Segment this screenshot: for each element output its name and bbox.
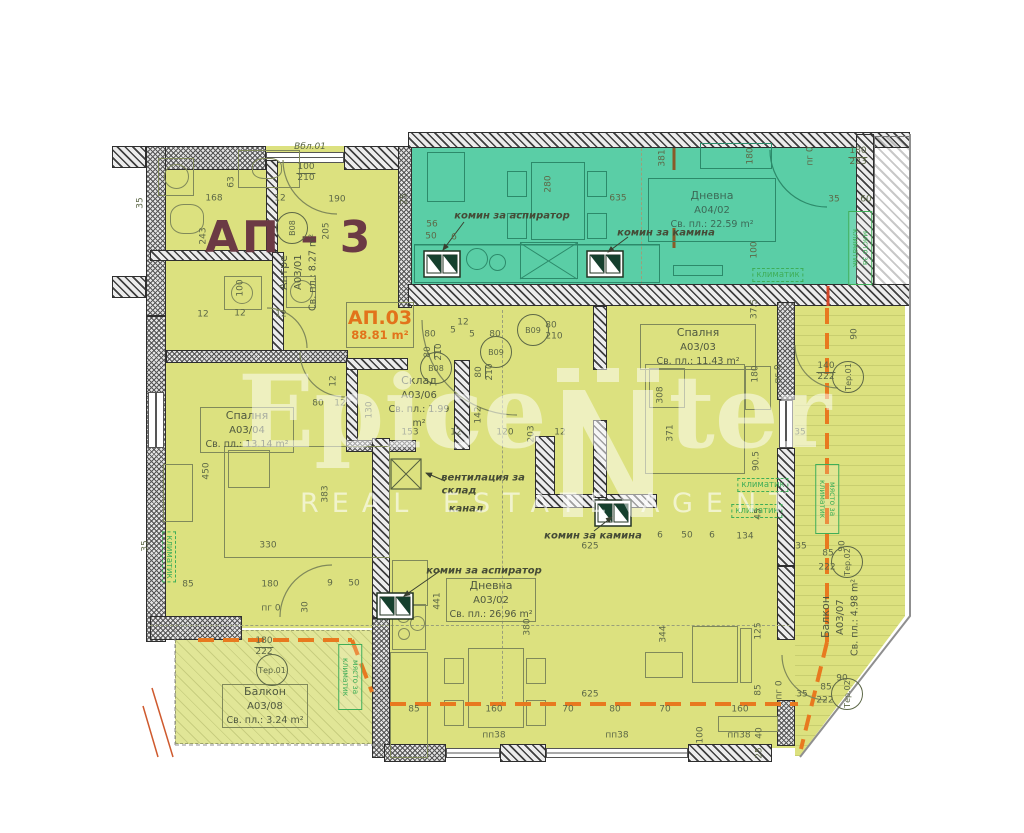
dim-label: 625: [581, 691, 598, 700]
dim-label: 80210: [475, 363, 495, 380]
dim-label: 635: [609, 195, 626, 204]
dim-label: 37.5: [751, 299, 760, 319]
dim-label: 5: [450, 327, 456, 336]
dim-label: 12: [275, 311, 286, 320]
dim-label: 80: [312, 400, 323, 409]
dim-label: 12: [334, 400, 345, 409]
dim-label: 80: [424, 331, 435, 340]
dim-label: 60: [860, 196, 871, 205]
dim-label: 80: [545, 322, 556, 331]
dim-label: 441: [434, 592, 443, 609]
dim-label: 222: [816, 697, 833, 706]
dim-label: пп38: [605, 732, 628, 741]
dim-label: 25: [401, 193, 410, 204]
dim-label: 243: [200, 227, 209, 244]
dim-label: 100: [751, 241, 760, 258]
dim-label: 85: [820, 684, 831, 693]
dim-label: 625: [581, 543, 598, 552]
dim-label: 180222: [254, 637, 273, 657]
dim-label: 56: [426, 221, 437, 230]
dim-label: 180223: [848, 147, 867, 167]
dim-label: 205: [323, 222, 332, 239]
dim-label: 35: [137, 197, 146, 208]
dim-label: 70: [562, 706, 573, 715]
dim-label: 450: [203, 462, 212, 479]
dim-label: 6: [451, 234, 457, 243]
dim-label: 142: [475, 406, 484, 423]
dim-label: 280: [545, 175, 554, 192]
dim-label: 12: [234, 310, 245, 319]
dim-label: 6: [657, 532, 663, 541]
dim-label: 85: [822, 550, 833, 559]
dim-label: 25: [756, 747, 765, 758]
dim-label: 90: [839, 540, 848, 551]
dim-label: 100: [697, 726, 706, 743]
dim-label: 160: [485, 706, 502, 715]
dim-label: 30: [302, 601, 311, 612]
dim-label: 134: [736, 533, 753, 542]
dim-label: 344: [660, 625, 669, 642]
dim-label: 222: [818, 564, 835, 573]
dim-label: 80210: [424, 343, 444, 360]
dim-label: 35: [795, 543, 806, 552]
dim-label: 90: [836, 675, 847, 684]
dim-label: 12: [457, 319, 468, 328]
dim-label: 381: [659, 149, 668, 166]
dim-label: 383: [322, 485, 331, 502]
dim-label: 63: [228, 176, 237, 187]
dim-label: 153: [401, 429, 418, 438]
dim-label: 90: [851, 328, 860, 339]
dim-label: 35: [794, 429, 805, 438]
dim-label: 50: [348, 580, 359, 589]
dim-label: 371: [667, 424, 676, 441]
dim-label: пг 0: [807, 146, 816, 165]
dim-label: 130: [366, 401, 375, 418]
dim-label: 140222: [816, 362, 835, 382]
dimensions-layer: 3516863121002101902052431001212122538128…: [0, 0, 1024, 833]
dim-label: 380: [524, 618, 533, 635]
dim-label: 190: [328, 196, 345, 205]
dim-label: 120: [496, 429, 513, 438]
dim-label: пг 0: [261, 605, 280, 614]
dim-label: 50: [425, 233, 436, 242]
dim-label: 180: [752, 365, 761, 382]
dim-label: 330: [259, 542, 276, 551]
dim-label: 12: [330, 375, 339, 386]
dim-label: пг 0: [776, 680, 785, 699]
dim-label: 12: [197, 311, 208, 320]
dim-label: 40: [756, 727, 765, 738]
dim-label: 85: [755, 684, 764, 695]
dim-label: 35: [796, 691, 807, 700]
dim-label: 210: [545, 333, 562, 342]
dim-label: 100: [237, 279, 246, 296]
dim-label: 35: [828, 196, 839, 205]
dim-label: 12: [274, 195, 285, 204]
dim-label: 100210: [296, 163, 315, 183]
dim-label: 160: [731, 706, 748, 715]
dim-label: 5: [469, 331, 475, 340]
dim-label: 85: [408, 706, 419, 715]
dim-label: 125: [755, 622, 764, 639]
dim-label: 45: [755, 508, 764, 519]
dim-label: пп38: [482, 732, 505, 741]
dim-label: 12: [450, 429, 461, 438]
dim-label: 203: [528, 425, 537, 442]
dim-label: 180: [747, 147, 756, 164]
dim-label: 70: [659, 706, 670, 715]
dim-label: 308: [657, 386, 666, 403]
dim-label: 12: [554, 429, 565, 438]
dim-label: 168: [205, 195, 222, 204]
dim-label: 80: [609, 706, 620, 715]
dim-label: 6: [709, 532, 715, 541]
dim-label: 35: [142, 540, 151, 551]
dim-label: 80: [489, 331, 500, 340]
dim-label: пп38: [727, 732, 750, 741]
dim-label: 9: [327, 580, 333, 589]
dim-label: пг 0: [775, 364, 784, 383]
dim-label: 90.5: [753, 451, 762, 471]
floor-plan-canvas: АП - 3 АП.03 88.81 m² Дневна A04/02 Св. …: [0, 0, 1024, 833]
dim-label: 85: [182, 581, 193, 590]
dim-label: 180: [261, 581, 278, 590]
dim-label: 50: [681, 532, 692, 541]
